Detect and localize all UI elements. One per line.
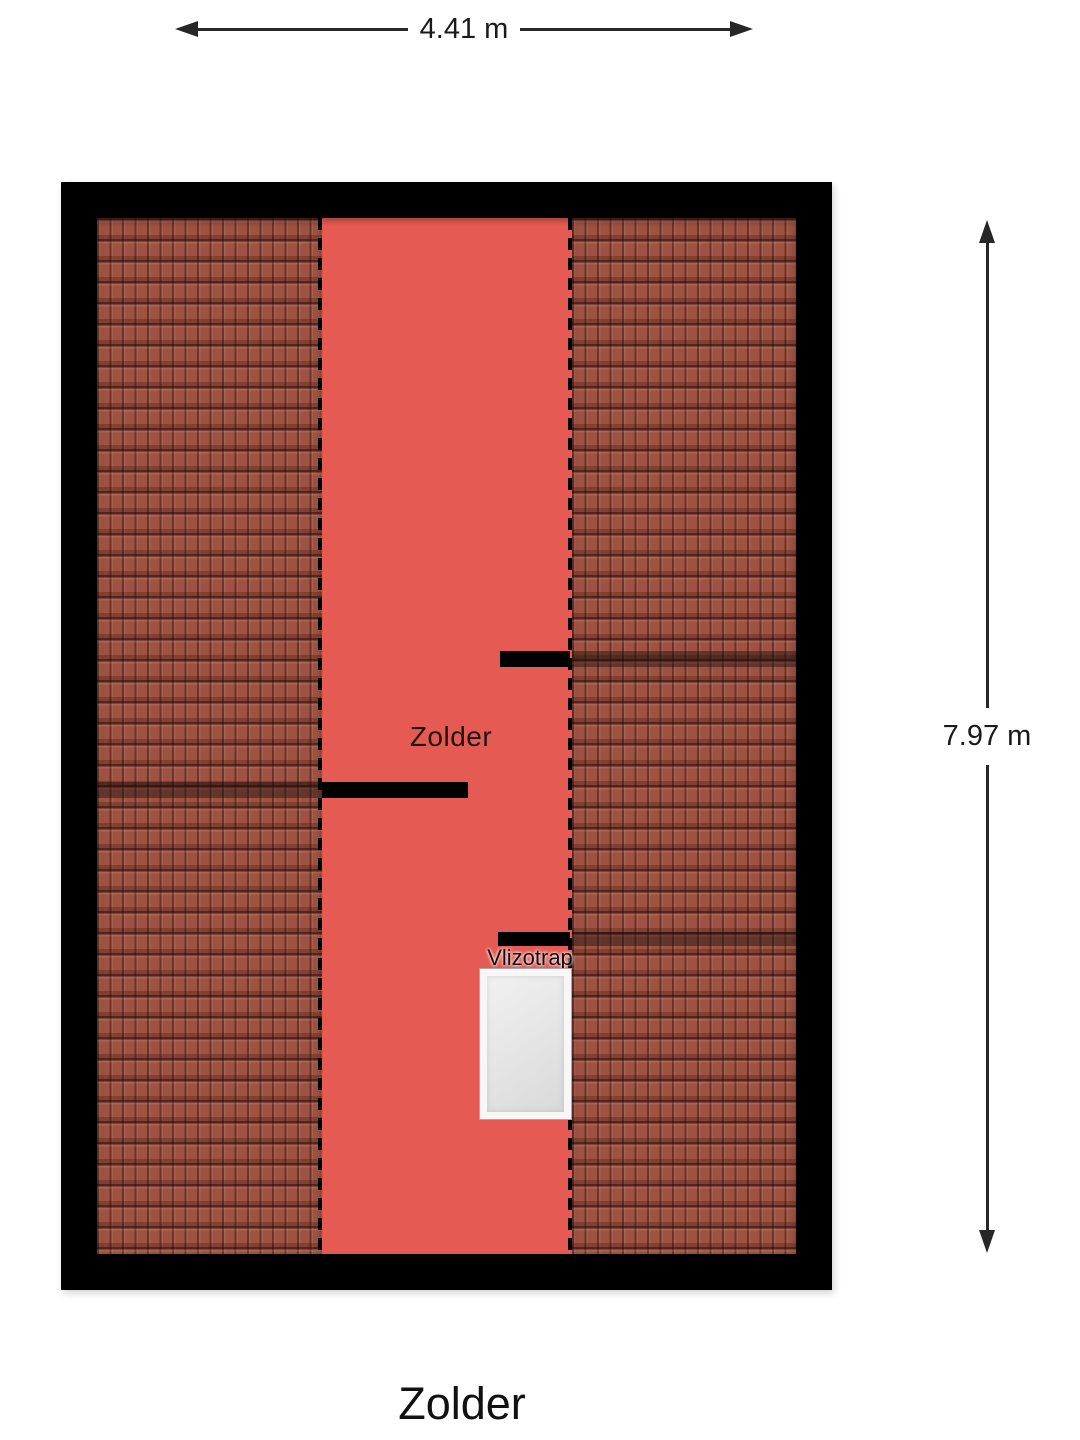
arrow-right-icon xyxy=(730,21,753,37)
roof-tiles-right xyxy=(572,218,796,1254)
dimension-line xyxy=(520,28,730,31)
loft-hatch xyxy=(480,969,571,1119)
floor-plan: Zolder Vlizotrap xyxy=(61,182,832,1290)
wall-under-roof-right-lower xyxy=(572,932,796,946)
wall-under-roof-right-upper xyxy=(572,651,796,667)
room-label: Zolder xyxy=(410,721,492,753)
height-dimension: 7.97 m xyxy=(973,220,1001,1253)
arrow-up-icon xyxy=(979,220,995,243)
attic-floor: Zolder Vlizotrap xyxy=(97,218,796,1254)
interior-wall-left-middle xyxy=(322,782,468,798)
interior-wall-right-upper xyxy=(500,651,570,667)
dimension-line xyxy=(986,765,989,1230)
width-dimension: 4.41 m xyxy=(175,14,753,44)
height-dimension-label: 7.97 m xyxy=(939,708,1036,765)
floorplan-page: 4.41 m 7.97 m Zolder Vlizotrap xyxy=(0,0,1080,1440)
dimension-line xyxy=(986,243,989,708)
roof-tiles-left xyxy=(97,218,322,1254)
width-dimension-label: 4.41 m xyxy=(408,13,521,46)
roofline-dashed-left xyxy=(318,218,322,1254)
dimension-line xyxy=(198,28,408,31)
arrow-down-icon xyxy=(979,1230,995,1253)
wall-under-roof-left-middle xyxy=(97,782,322,798)
arrow-left-icon xyxy=(175,21,198,37)
loft-hatch-label: Vlizotrap xyxy=(487,945,573,971)
floor-title: Zolder xyxy=(0,1378,924,1430)
interior-wall-right-lower xyxy=(498,932,570,946)
